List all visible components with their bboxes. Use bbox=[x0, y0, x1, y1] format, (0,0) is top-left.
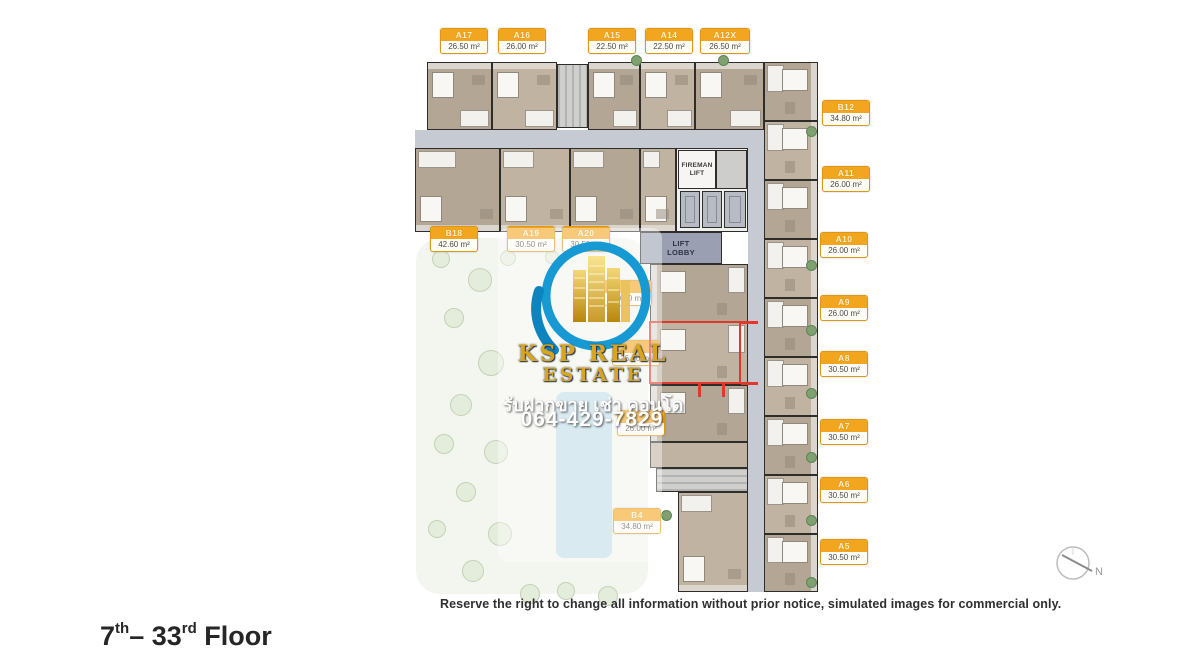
tree-icon bbox=[718, 55, 729, 66]
plan-shape bbox=[525, 110, 554, 127]
unit-label-name: B18 bbox=[431, 227, 477, 239]
plan-shape bbox=[811, 63, 817, 120]
plan-shape bbox=[480, 209, 493, 219]
tree-icon bbox=[806, 260, 817, 271]
plan-shape bbox=[505, 196, 527, 222]
compass-icon: N bbox=[1050, 542, 1110, 593]
unit-label: A1422.50 m² bbox=[645, 28, 693, 54]
plan-shape bbox=[472, 75, 485, 85]
lift-shaft bbox=[680, 191, 700, 228]
corridor-vertical bbox=[748, 130, 764, 592]
unit-label: A1626.00 m² bbox=[498, 28, 546, 54]
plan-shape bbox=[717, 423, 727, 435]
unit-label-area: 22.50 m² bbox=[589, 41, 635, 53]
plan-shape bbox=[681, 495, 712, 512]
unit-label: A1726.50 m² bbox=[440, 28, 488, 54]
north-label: N bbox=[1095, 566, 1103, 578]
unit-cell bbox=[650, 442, 748, 468]
plan-shape bbox=[782, 187, 808, 209]
unit-label: A1522.50 m² bbox=[588, 28, 636, 54]
plan-shape bbox=[717, 303, 727, 315]
unit-label: A730.50 m² bbox=[820, 419, 868, 445]
plan-shape bbox=[537, 75, 550, 85]
plan-shape bbox=[503, 151, 534, 168]
unit-label: A12X26.50 m² bbox=[700, 28, 750, 54]
lift-lobby-label: LIFT LOBBY bbox=[661, 239, 701, 257]
plan-shape bbox=[675, 75, 688, 85]
plan-shape bbox=[730, 110, 761, 127]
unit-label: A530.50 m² bbox=[820, 539, 868, 565]
plan-shape bbox=[613, 110, 637, 127]
unit-label-area: 30.50 m² bbox=[821, 490, 867, 502]
tree-icon bbox=[444, 308, 464, 328]
phone-number: 064-429-7829 bbox=[521, 408, 664, 432]
plan-shape bbox=[593, 72, 615, 98]
plan-shape bbox=[782, 69, 808, 91]
unit-label-area: 30.50 m² bbox=[821, 432, 867, 444]
unit-label-name: A10 bbox=[821, 233, 867, 245]
unit-cell bbox=[678, 492, 748, 592]
tree-icon bbox=[434, 434, 454, 454]
plan-shape bbox=[460, 110, 489, 127]
unit-cell bbox=[695, 62, 764, 130]
stairwell bbox=[656, 468, 748, 492]
corridor-horizontal bbox=[415, 130, 762, 148]
tree-icon bbox=[456, 482, 476, 502]
unit-label: A926.00 m² bbox=[820, 295, 868, 321]
plan-shape bbox=[418, 151, 456, 168]
fireman-lift-label: FIREMAN LIFT bbox=[681, 162, 713, 178]
plan-shape bbox=[785, 573, 795, 585]
plan-shape bbox=[782, 482, 808, 504]
plan-shape bbox=[785, 161, 795, 173]
plan-shape bbox=[497, 72, 519, 98]
unit-label-name: A8 bbox=[821, 352, 867, 364]
unit-cell bbox=[640, 148, 676, 232]
tree-icon bbox=[432, 250, 450, 268]
plan-shape bbox=[744, 75, 757, 85]
tree-icon bbox=[806, 126, 817, 137]
plan-shape bbox=[785, 515, 795, 527]
plan-shape bbox=[696, 63, 763, 69]
plan-shape bbox=[728, 569, 741, 579]
highlight-tick bbox=[741, 321, 758, 324]
lift-shaft bbox=[702, 191, 722, 228]
tree-icon bbox=[806, 515, 817, 526]
plan-shape bbox=[679, 585, 747, 591]
unit-cell bbox=[764, 416, 818, 475]
unit-cell bbox=[415, 148, 500, 232]
unit-cell bbox=[764, 180, 818, 239]
plan-shape bbox=[575, 196, 597, 222]
plan-shape bbox=[782, 541, 808, 563]
tree-icon bbox=[450, 394, 472, 416]
unit-cell bbox=[650, 264, 748, 322]
floor-plan-page: FIREMAN LIFT LIFT LOBBY bbox=[0, 0, 1200, 655]
unit-cell bbox=[764, 62, 818, 121]
unit-label-name: A15 bbox=[589, 29, 635, 41]
tree-icon bbox=[462, 560, 484, 582]
unit-label-name: A7 bbox=[821, 420, 867, 432]
tree-icon bbox=[806, 325, 817, 336]
plan-shape bbox=[728, 267, 745, 293]
plan-shape bbox=[785, 456, 795, 468]
plan-shape bbox=[667, 110, 692, 127]
plan-shape bbox=[782, 246, 808, 268]
unit-label: B1234.80 m² bbox=[822, 100, 870, 126]
unit-cell bbox=[427, 62, 492, 130]
highlight-tick bbox=[741, 382, 758, 385]
plan-shape bbox=[641, 63, 694, 69]
unit-label-area: 26.50 m² bbox=[701, 41, 749, 53]
tree-icon bbox=[631, 55, 642, 66]
tree-icon bbox=[468, 268, 492, 292]
unit-cell bbox=[570, 148, 640, 232]
unit-label: A1026.00 m² bbox=[820, 232, 868, 258]
unit-label: A1126.00 m² bbox=[822, 166, 870, 192]
plan-shape bbox=[811, 417, 817, 474]
plan-shape bbox=[656, 209, 669, 219]
unit-label: A830.50 m² bbox=[820, 351, 868, 377]
lift-shaft bbox=[724, 191, 746, 228]
tree-icon bbox=[806, 577, 817, 588]
plan-shape bbox=[785, 279, 795, 291]
plan-shape bbox=[785, 397, 795, 409]
stairwell bbox=[557, 64, 588, 128]
plan-shape bbox=[428, 63, 491, 69]
unit-label-area: 26.00 m² bbox=[499, 41, 545, 53]
floor-range-label: 7th– 33rd Floor bbox=[70, 590, 272, 655]
highlight-tick bbox=[722, 384, 725, 397]
plan-shape bbox=[683, 556, 705, 582]
plan-shape bbox=[785, 220, 795, 232]
plan-shape bbox=[620, 75, 633, 85]
unit-label-name: A9 bbox=[821, 296, 867, 308]
plan-shape bbox=[782, 128, 808, 150]
plan-shape bbox=[643, 151, 660, 168]
disclaimer-text: Reserve the right to change all informat… bbox=[440, 597, 1180, 611]
plan-shape bbox=[811, 358, 817, 415]
unit-label-area: 26.00 m² bbox=[821, 245, 867, 257]
unit-cell bbox=[640, 62, 695, 130]
plan-shape bbox=[550, 209, 563, 219]
unit-cell bbox=[492, 62, 557, 130]
plan-shape bbox=[620, 209, 633, 219]
highlight-tick bbox=[698, 384, 701, 397]
plan-shape bbox=[782, 305, 808, 327]
plan-shape bbox=[811, 181, 817, 238]
plan-shape bbox=[493, 63, 556, 69]
unit-label-area: 26.50 m² bbox=[441, 41, 487, 53]
plan-shape bbox=[785, 102, 795, 114]
plan-shape bbox=[645, 72, 667, 98]
unit-label-name: A5 bbox=[821, 540, 867, 552]
unit-label: B1842.60 m² bbox=[430, 226, 478, 252]
unit-label-area: 26.00 m² bbox=[821, 308, 867, 320]
unit-cell bbox=[500, 148, 570, 232]
plan-shape bbox=[782, 364, 808, 386]
unit-label-area: 26.00 m² bbox=[823, 179, 869, 191]
fireman-lift-room: FIREMAN LIFT bbox=[678, 150, 716, 189]
unit-label-area: 42.60 m² bbox=[431, 239, 477, 251]
tree-icon bbox=[806, 388, 817, 399]
unit-label: A630.50 m² bbox=[820, 477, 868, 503]
unit-label-name: A11 bbox=[823, 167, 869, 179]
tree-icon bbox=[428, 520, 446, 538]
tree-icon bbox=[806, 452, 817, 463]
unit-cell bbox=[588, 62, 640, 130]
unit-cell bbox=[764, 357, 818, 416]
unit-label-name: A12X bbox=[701, 29, 749, 41]
plan-shape bbox=[573, 151, 604, 168]
unit-label-name: A16 bbox=[499, 29, 545, 41]
unit-label-area: 34.80 m² bbox=[823, 113, 869, 125]
plan-shape bbox=[782, 423, 808, 445]
plan-shape bbox=[700, 72, 722, 98]
plan-shape bbox=[785, 338, 795, 350]
plan-shape bbox=[432, 72, 454, 98]
unit-label-name: B12 bbox=[823, 101, 869, 113]
unit-label-area: 30.50 m² bbox=[821, 364, 867, 376]
unit-label-area: 30.50 m² bbox=[821, 552, 867, 564]
plan-shape bbox=[420, 196, 442, 222]
plan-shape bbox=[728, 388, 745, 414]
brand-name-line2: ESTATE bbox=[542, 364, 644, 386]
unit-label-area: 22.50 m² bbox=[646, 41, 692, 53]
tree-icon bbox=[661, 510, 672, 521]
unit-label-name: A6 bbox=[821, 478, 867, 490]
unit-label-name: A14 bbox=[646, 29, 692, 41]
unit-label-name: A17 bbox=[441, 29, 487, 41]
service-room bbox=[716, 150, 747, 189]
